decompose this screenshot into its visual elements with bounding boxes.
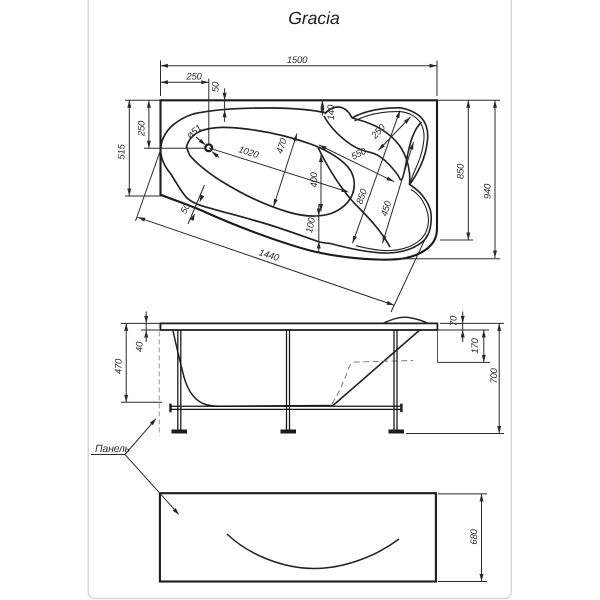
svg-text:450: 450: [379, 199, 394, 218]
svg-text:170: 170: [470, 337, 481, 353]
svg-text:ø51: ø51: [185, 123, 204, 141]
svg-text:250: 250: [185, 72, 202, 83]
svg-text:515: 515: [117, 143, 128, 159]
svg-text:680: 680: [469, 528, 480, 544]
svg-text:40: 40: [134, 341, 145, 352]
svg-text:850: 850: [354, 187, 370, 206]
svg-text:1440: 1440: [257, 247, 281, 264]
svg-text:100: 100: [304, 216, 318, 234]
svg-text:1020: 1020: [237, 144, 261, 161]
svg-text:1500: 1500: [287, 55, 308, 66]
svg-text:50: 50: [211, 81, 222, 92]
svg-text:250: 250: [137, 120, 148, 137]
svg-text:940: 940: [483, 183, 494, 199]
svg-text:700: 700: [489, 367, 500, 383]
svg-text:470: 470: [275, 136, 290, 155]
svg-text:470: 470: [114, 358, 125, 374]
svg-text:400: 400: [309, 171, 320, 187]
svg-text:550: 550: [350, 145, 369, 162]
svg-text:140: 140: [326, 104, 337, 120]
svg-text:850: 850: [456, 163, 467, 179]
svg-text:Панель: Панель: [95, 443, 130, 455]
svg-text:70: 70: [449, 315, 460, 326]
svg-text:Gracia: Gracia: [288, 8, 340, 28]
